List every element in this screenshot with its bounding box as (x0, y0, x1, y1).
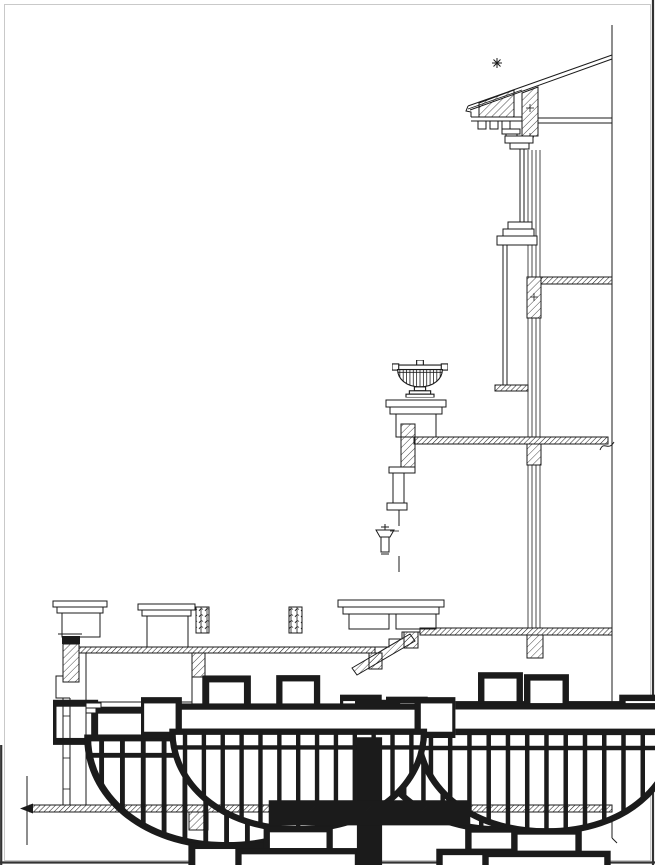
dentil-block (478, 121, 486, 129)
left-parapet-cap (62, 636, 80, 644)
parapet-base-band (389, 467, 415, 473)
wall-end-tick (612, 838, 617, 843)
window-mullions-upper (528, 150, 540, 277)
slab-hatch (79, 647, 375, 653)
pedestal-cap-2 (343, 607, 439, 614)
fascia-profile (466, 106, 471, 117)
pedestal-cap-1 (53, 601, 107, 607)
rail-cap-moulding (86, 703, 101, 708)
architectural-section-drawing (0, 0, 655, 865)
pedestal-cap-1 (338, 600, 444, 607)
floor-slab-mid (414, 437, 614, 628)
pedestal-cap-2 (390, 407, 442, 414)
rail-cap-step (86, 708, 96, 713)
pedestal-cap-1 (138, 604, 195, 610)
foundation-pier (189, 812, 208, 830)
window-mullions-mid (528, 318, 540, 437)
downstand-pier (527, 635, 543, 658)
drawing-canvas (0, 0, 655, 865)
pedestal-shaft (147, 616, 188, 647)
wall-section-hatch (527, 444, 541, 465)
floor-slab-upper (527, 277, 612, 318)
roof-cornice-assembly (466, 55, 612, 141)
level3-parapet-urn (376, 360, 448, 572)
cap-moulding-1 (505, 136, 533, 143)
urn-level3 (392, 360, 448, 398)
window-mullions-lower (528, 465, 540, 628)
pedestal-shaft-front (396, 614, 436, 629)
rafter-section-hatch (479, 90, 514, 117)
roof-slope-outer (468, 55, 612, 106)
cap-moulding-2 (510, 143, 529, 149)
reference-asterisk (492, 58, 502, 68)
base-moulding-2 (503, 229, 534, 236)
mid-window (495, 245, 540, 437)
slab-hatch (541, 277, 612, 284)
base-moulding-1 (508, 222, 532, 229)
corbel-bracket (502, 129, 520, 134)
vent-grille-1 (196, 607, 209, 633)
dentil-block (490, 121, 498, 129)
step-post (369, 653, 382, 669)
base-moulding-3 (497, 236, 537, 245)
window-sill (495, 385, 528, 391)
slab-hatch (414, 437, 608, 444)
pedestal-cap-1 (386, 400, 446, 407)
dentil-block (502, 121, 510, 129)
slab-hatch (30, 805, 612, 812)
parapet-foot (387, 503, 407, 510)
step-block-hatch (404, 632, 418, 648)
pedestal-cap-2 (142, 610, 191, 616)
wall-lantern-mid (376, 524, 394, 554)
floor-slab-terrace-upper (420, 628, 612, 658)
downstand-pier (192, 653, 205, 677)
left-parapet-section (63, 644, 79, 682)
pedestal-shaft (62, 613, 100, 637)
level3-parapet-section (401, 424, 415, 467)
pedestal-shaft-rear (349, 614, 389, 629)
slab-hatch (420, 628, 612, 635)
vent-grille-2 (289, 607, 302, 633)
pedestal-cap-2 (57, 607, 103, 613)
